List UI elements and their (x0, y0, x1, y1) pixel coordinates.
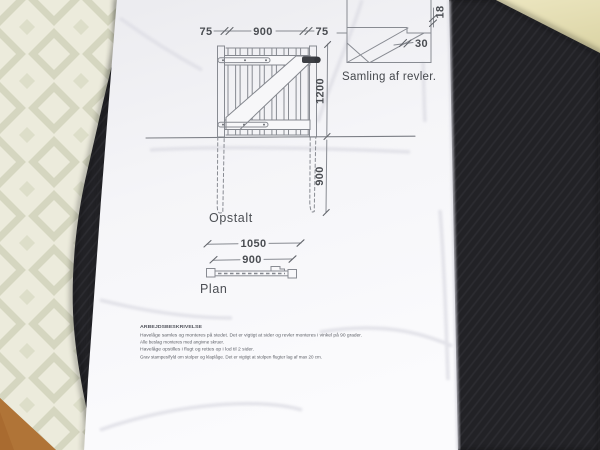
plan-view-label: Plan (200, 282, 227, 296)
dim-post-right: 75 (315, 26, 328, 38)
paper-sheet (84, 0, 458, 450)
dim-gate-height: 1200 (315, 78, 327, 104)
notes-line: Alle beslag monteres med angivne skruer. (140, 340, 224, 345)
dim-post-depth: 900 (314, 166, 326, 186)
dim-plan-overall: 1050 (240, 238, 266, 250)
detail-caption: Samling af revler. (342, 71, 436, 83)
dim-detail-thickness: 18 (435, 5, 447, 18)
notes-heading: ARBEJDSBESKRIVELSE (140, 324, 203, 330)
photo-of-technical-drawing: 75 900 75 (0, 0, 600, 450)
dim-detail-width: 30 (415, 38, 428, 50)
elevation-view-label: Opstalt (209, 211, 253, 225)
notes-line: Grav stampes/fyld om stolper og klaplåge… (140, 355, 322, 360)
dim-plan-gate: 900 (242, 254, 262, 266)
dim-gate-width: 900 (253, 26, 273, 38)
scene: 75 900 75 (0, 0, 600, 450)
notes-line: Havelåge samles og monteres på stedet. D… (140, 333, 362, 338)
notes-line: Havelåge opstilles i flugt og rettes op … (140, 347, 254, 352)
hinge-pin (302, 57, 321, 64)
dim-post-left: 75 (199, 26, 212, 38)
